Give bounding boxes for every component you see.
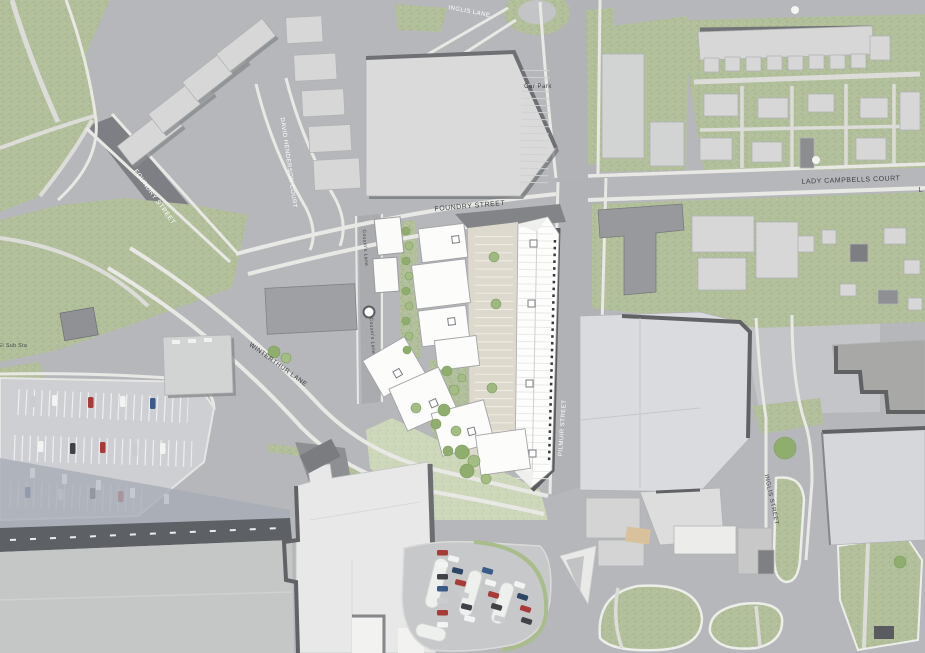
label-lady-campbells-truncated: L <box>919 187 923 194</box>
south-car-park <box>402 542 551 652</box>
site-plan-page: INGLIS LANE Car Park DAVID HENDERSON COU… <box>0 0 925 653</box>
label-car-park: Car Park <box>524 84 552 90</box>
site-plan-map: INGLIS LANE Car Park DAVID HENDERSON COU… <box>0 0 925 653</box>
label-el-sub-sta: El Sub Sta <box>0 343 27 349</box>
